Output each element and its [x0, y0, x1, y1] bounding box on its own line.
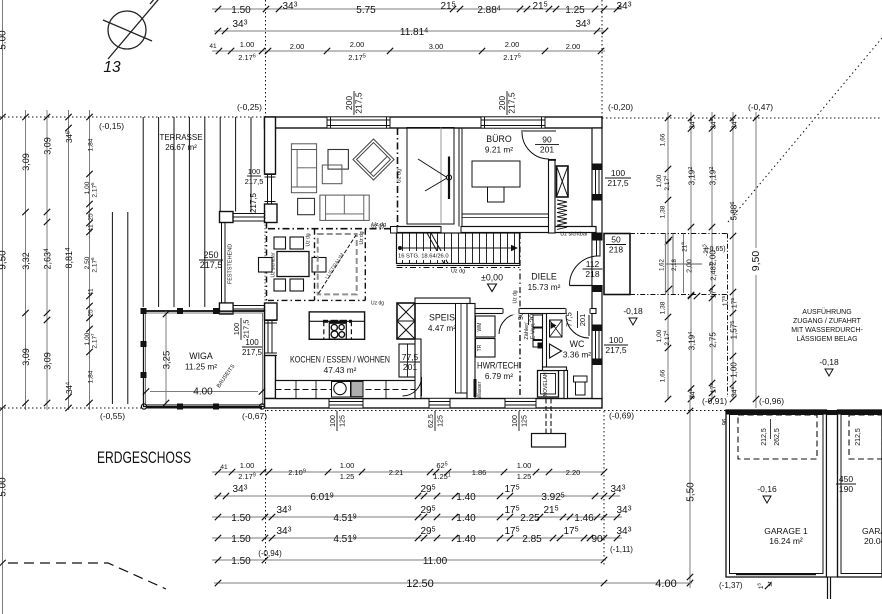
svg-text:218: 218 — [585, 269, 599, 279]
svg-text:5.00: 5.00 — [0, 477, 9, 497]
svg-text:TERRASSE: TERRASSE — [159, 133, 202, 142]
svg-text:3.00: 3.00 — [429, 42, 444, 51]
svg-text:41: 41 — [88, 224, 95, 232]
svg-text:2.20: 2.20 — [566, 468, 581, 477]
svg-text:st: st — [767, 581, 774, 586]
svg-text:Zähler/: Zähler/ — [524, 322, 530, 340]
svg-text:100: 100 — [512, 415, 519, 427]
svg-text:100: 100 — [330, 415, 337, 427]
svg-text:Wasser: Wasser — [477, 381, 483, 398]
svg-text:WM: WM — [477, 323, 483, 332]
svg-text:1,62: 1,62 — [660, 259, 666, 271]
svg-text:50: 50 — [611, 235, 621, 245]
svg-text:212,5: 212,5 — [855, 428, 862, 446]
svg-text:2.85: 2.85 — [522, 534, 542, 545]
svg-text:(-0,94): (-0,94) — [258, 549, 282, 558]
svg-text:(-0,15): (-0,15) — [99, 121, 124, 131]
svg-text:125: 125 — [438, 415, 445, 427]
svg-text:201: 201 — [403, 362, 417, 372]
svg-text:3.36 m²: 3.36 m² — [563, 350, 591, 360]
svg-text:100: 100 — [232, 323, 241, 336]
svg-text:20.04 m²: 20.04 m² — [864, 536, 882, 546]
svg-text:3,25: 3,25 — [162, 351, 173, 370]
svg-text:(-1,37): (-1,37) — [719, 581, 743, 590]
svg-text:100: 100 — [609, 335, 623, 345]
svg-text:16 STG. 18.64/26.0: 16 STG. 18.64/26.0 — [398, 254, 449, 260]
svg-text:Uz dg: Uz dg — [306, 233, 312, 246]
svg-text:3,09: 3,09 — [43, 137, 53, 155]
svg-text:Uz dg: Uz dg — [371, 223, 384, 229]
svg-text:125: 125 — [340, 415, 347, 427]
svg-text:1.86: 1.86 — [472, 468, 487, 477]
svg-text:9.21 m²: 9.21 m² — [485, 145, 513, 155]
svg-text:±0,00: ±0,00 — [481, 273, 503, 283]
svg-text:217,5: 217,5 — [242, 320, 251, 339]
svg-text:2.21: 2.21 — [389, 468, 404, 477]
svg-text:HWR/TECH.: HWR/TECH. — [477, 361, 521, 371]
svg-text:13: 13 — [103, 59, 121, 76]
svg-text:2,75: 2,75 — [709, 332, 718, 348]
svg-text:112: 112 — [586, 259, 600, 269]
svg-text:ERDGESCHOSS: ERDGESCHOSS — [97, 449, 191, 467]
svg-text:(-1,11): (-1,11) — [610, 545, 633, 554]
svg-text:1.46: 1.46 — [574, 513, 594, 524]
svg-text:11.814: 11.814 — [400, 27, 428, 38]
svg-text:1.50: 1.50 — [231, 534, 251, 545]
svg-text:96: 96 — [723, 418, 729, 425]
svg-text:4.47 m²: 4.47 m² — [428, 323, 456, 333]
svg-text:-0,16: -0,16 — [757, 484, 777, 494]
svg-text:(-0,69): (-0,69) — [609, 411, 634, 421]
svg-text:NOVELAN: NOVELAN — [543, 372, 549, 396]
svg-text:1.25: 1.25 — [340, 472, 355, 481]
svg-text:212,5: 212,5 — [761, 428, 768, 446]
svg-text:1.50: 1.50 — [231, 513, 251, 524]
svg-text:(-0,20): (-0,20) — [608, 102, 633, 112]
svg-text:1,00: 1,00 — [730, 362, 739, 378]
svg-text:1.40: 1.40 — [456, 492, 476, 503]
svg-text:1.00: 1.00 — [240, 40, 255, 49]
svg-text:LÄSSIGEM BELAG: LÄSSIGEM BELAG — [796, 335, 857, 343]
svg-text:(-0,55): (-0,55) — [100, 411, 125, 421]
svg-text:26.67 m²: 26.67 m² — [165, 143, 197, 152]
svg-text:AUSFÜHRUNG: AUSFÜHRUNG — [802, 308, 851, 316]
svg-text:2.25: 2.25 — [520, 513, 540, 524]
svg-text:3,09: 3,09 — [43, 352, 53, 370]
svg-text:25: 25 — [88, 213, 95, 221]
svg-text:2.00: 2.00 — [566, 42, 581, 51]
svg-text:217,5: 217,5 — [200, 260, 223, 270]
svg-text:15.73 m²: 15.73 m² — [528, 282, 561, 292]
svg-text:217,5: 217,5 — [607, 178, 629, 188]
svg-text:2.00: 2.00 — [350, 40, 365, 49]
svg-text:217,5: 217,5 — [605, 345, 627, 355]
svg-text:1.40: 1.40 — [456, 513, 476, 524]
svg-text:90: 90 — [591, 534, 603, 545]
svg-text:11.25 m²: 11.25 m² — [185, 362, 217, 372]
svg-text:250: 250 — [203, 250, 218, 260]
svg-text:100: 100 — [248, 167, 261, 176]
svg-text:9,50: 9,50 — [0, 250, 9, 270]
svg-text:200: 200 — [344, 96, 354, 110]
svg-text:GARAGE 1: GARAGE 1 — [764, 526, 808, 536]
svg-text:Uz sichtbar: Uz sichtbar — [560, 232, 588, 238]
svg-text:217,5: 217,5 — [242, 348, 263, 357]
svg-text:1.50: 1.50 — [231, 556, 251, 567]
svg-text:5,50: 5,50 — [686, 482, 697, 502]
svg-text:Uz dg: Uz dg — [513, 290, 519, 303]
svg-text:5.00: 5.00 — [0, 30, 9, 50]
svg-text:Uz dg: Uz dg — [359, 231, 365, 244]
svg-text:1.50: 1.50 — [231, 5, 251, 16]
svg-text:217,5: 217,5 — [249, 192, 258, 213]
svg-text:(-0,91): (-0,91) — [702, 396, 727, 406]
svg-text:1,38: 1,38 — [660, 205, 667, 218]
svg-text:1.00: 1.00 — [340, 461, 355, 470]
svg-text:12.50: 12.50 — [406, 578, 434, 590]
svg-text:(-0,25): (-0,25) — [237, 102, 262, 112]
svg-text:(-0,67): (-0,67) — [242, 411, 267, 421]
svg-text:218: 218 — [609, 245, 623, 255]
svg-text:3,32: 3,32 — [21, 252, 31, 270]
svg-text:E-Vert.: E-Vert. — [531, 322, 537, 339]
svg-text:FESTSTEHEND: FESTSTEHEND — [228, 244, 234, 284]
svg-text:WIGA: WIGA — [189, 351, 213, 361]
svg-text:TR: TR — [477, 344, 483, 351]
svg-text:Uz dg: Uz dg — [371, 301, 384, 307]
svg-text:4.00: 4.00 — [655, 578, 676, 590]
svg-text:1,66: 1,66 — [660, 133, 667, 146]
svg-text:47.43 m²: 47.43 m² — [324, 365, 357, 375]
svg-text:-0,18: -0,18 — [819, 357, 839, 367]
svg-text:DIELE: DIELE — [531, 272, 557, 282]
svg-text:1,38: 1,38 — [660, 301, 667, 314]
svg-text:GARAGE 2: GARAGE 2 — [862, 526, 882, 536]
svg-text:41: 41 — [88, 288, 95, 296]
svg-text:3,09: 3,09 — [21, 153, 31, 171]
svg-text:217,5: 217,5 — [507, 92, 517, 114]
svg-text:200: 200 — [497, 96, 507, 110]
svg-text:Uz dg: Uz dg — [451, 269, 465, 275]
svg-text:217,5: 217,5 — [245, 177, 264, 186]
svg-text:1.40: 1.40 — [456, 534, 476, 545]
svg-text:262,5: 262,5 — [774, 428, 781, 446]
svg-text:5.75: 5.75 — [356, 5, 376, 16]
svg-text:2,00: 2,00 — [687, 259, 694, 273]
svg-text:3,09: 3,09 — [21, 348, 31, 366]
svg-text:1,84: 1,84 — [88, 370, 95, 383]
svg-text:100: 100 — [611, 168, 625, 178]
svg-text:9,50: 9,50 — [750, 251, 762, 272]
svg-text:2,18: 2,18 — [672, 259, 678, 271]
svg-text:1,66: 1,66 — [660, 369, 667, 382]
svg-text:1.00: 1.00 — [240, 461, 255, 470]
svg-text:(-0,96): (-0,96) — [759, 396, 784, 406]
svg-text:1.00: 1.00 — [517, 461, 532, 470]
svg-text:16.24 m²: 16.24 m² — [769, 536, 803, 546]
svg-text:25: 25 — [88, 309, 95, 317]
svg-text:77,5: 77,5 — [402, 352, 419, 362]
svg-text:1,84: 1,84 — [88, 138, 95, 151]
svg-text:-0,18: -0,18 — [623, 306, 643, 316]
svg-text:WC: WC — [570, 339, 585, 349]
svg-text:201: 201 — [540, 145, 554, 155]
svg-text:Uz dg: Uz dg — [397, 169, 403, 183]
svg-text:ZUGANG / ZUFAHRT: ZUGANG / ZUFAHRT — [793, 318, 862, 325]
svg-text:(-0,65): (-0,65) — [705, 246, 726, 253]
svg-text:41: 41 — [209, 43, 217, 50]
svg-text:201: 201 — [578, 314, 587, 327]
svg-text:62,5: 62,5 — [428, 414, 435, 428]
svg-text:41: 41 — [220, 464, 228, 471]
svg-text:100: 100 — [245, 338, 259, 347]
svg-text:BÜRO: BÜRO — [486, 134, 512, 144]
svg-text:77,5: 77,5 — [565, 312, 574, 327]
svg-text:2.00: 2.00 — [505, 40, 520, 49]
svg-text:6.79 m²: 6.79 m² — [485, 371, 513, 381]
svg-text:125: 125 — [522, 415, 529, 427]
svg-text:217,5: 217,5 — [354, 92, 364, 114]
svg-text:MIT WASSERDURCH-: MIT WASSERDURCH- — [791, 327, 863, 334]
svg-text:(-0,47): (-0,47) — [748, 102, 773, 112]
svg-text:2.00: 2.00 — [290, 42, 305, 51]
svg-text:90: 90 — [542, 135, 552, 145]
svg-text:4.00: 4.00 — [193, 387, 213, 398]
svg-text:KOCHEN / ESSEN / WOHNEN: KOCHEN / ESSEN / WOHNEN — [290, 355, 390, 365]
svg-text:1.25: 1.25 — [565, 5, 585, 16]
svg-text:1.25: 1.25 — [517, 472, 532, 481]
svg-text:SPEIS: SPEIS — [429, 313, 455, 323]
svg-text:11.00: 11.00 — [423, 556, 448, 567]
